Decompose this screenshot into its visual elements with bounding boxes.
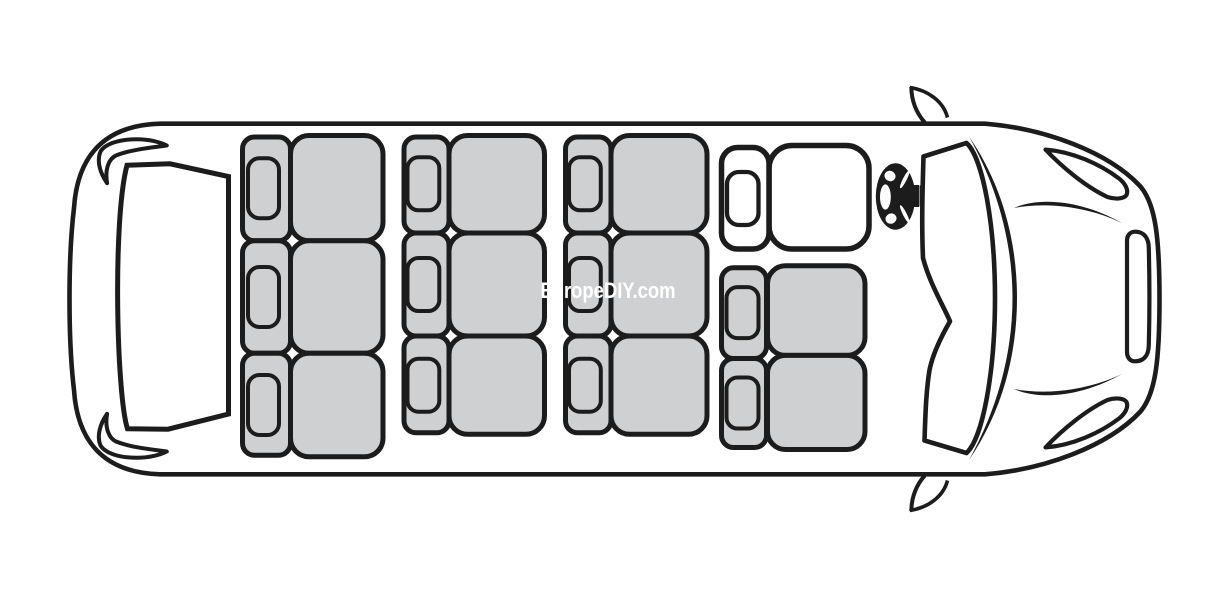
svg-text:EuropeDIY.com: EuropeDIY.com bbox=[541, 278, 676, 303]
